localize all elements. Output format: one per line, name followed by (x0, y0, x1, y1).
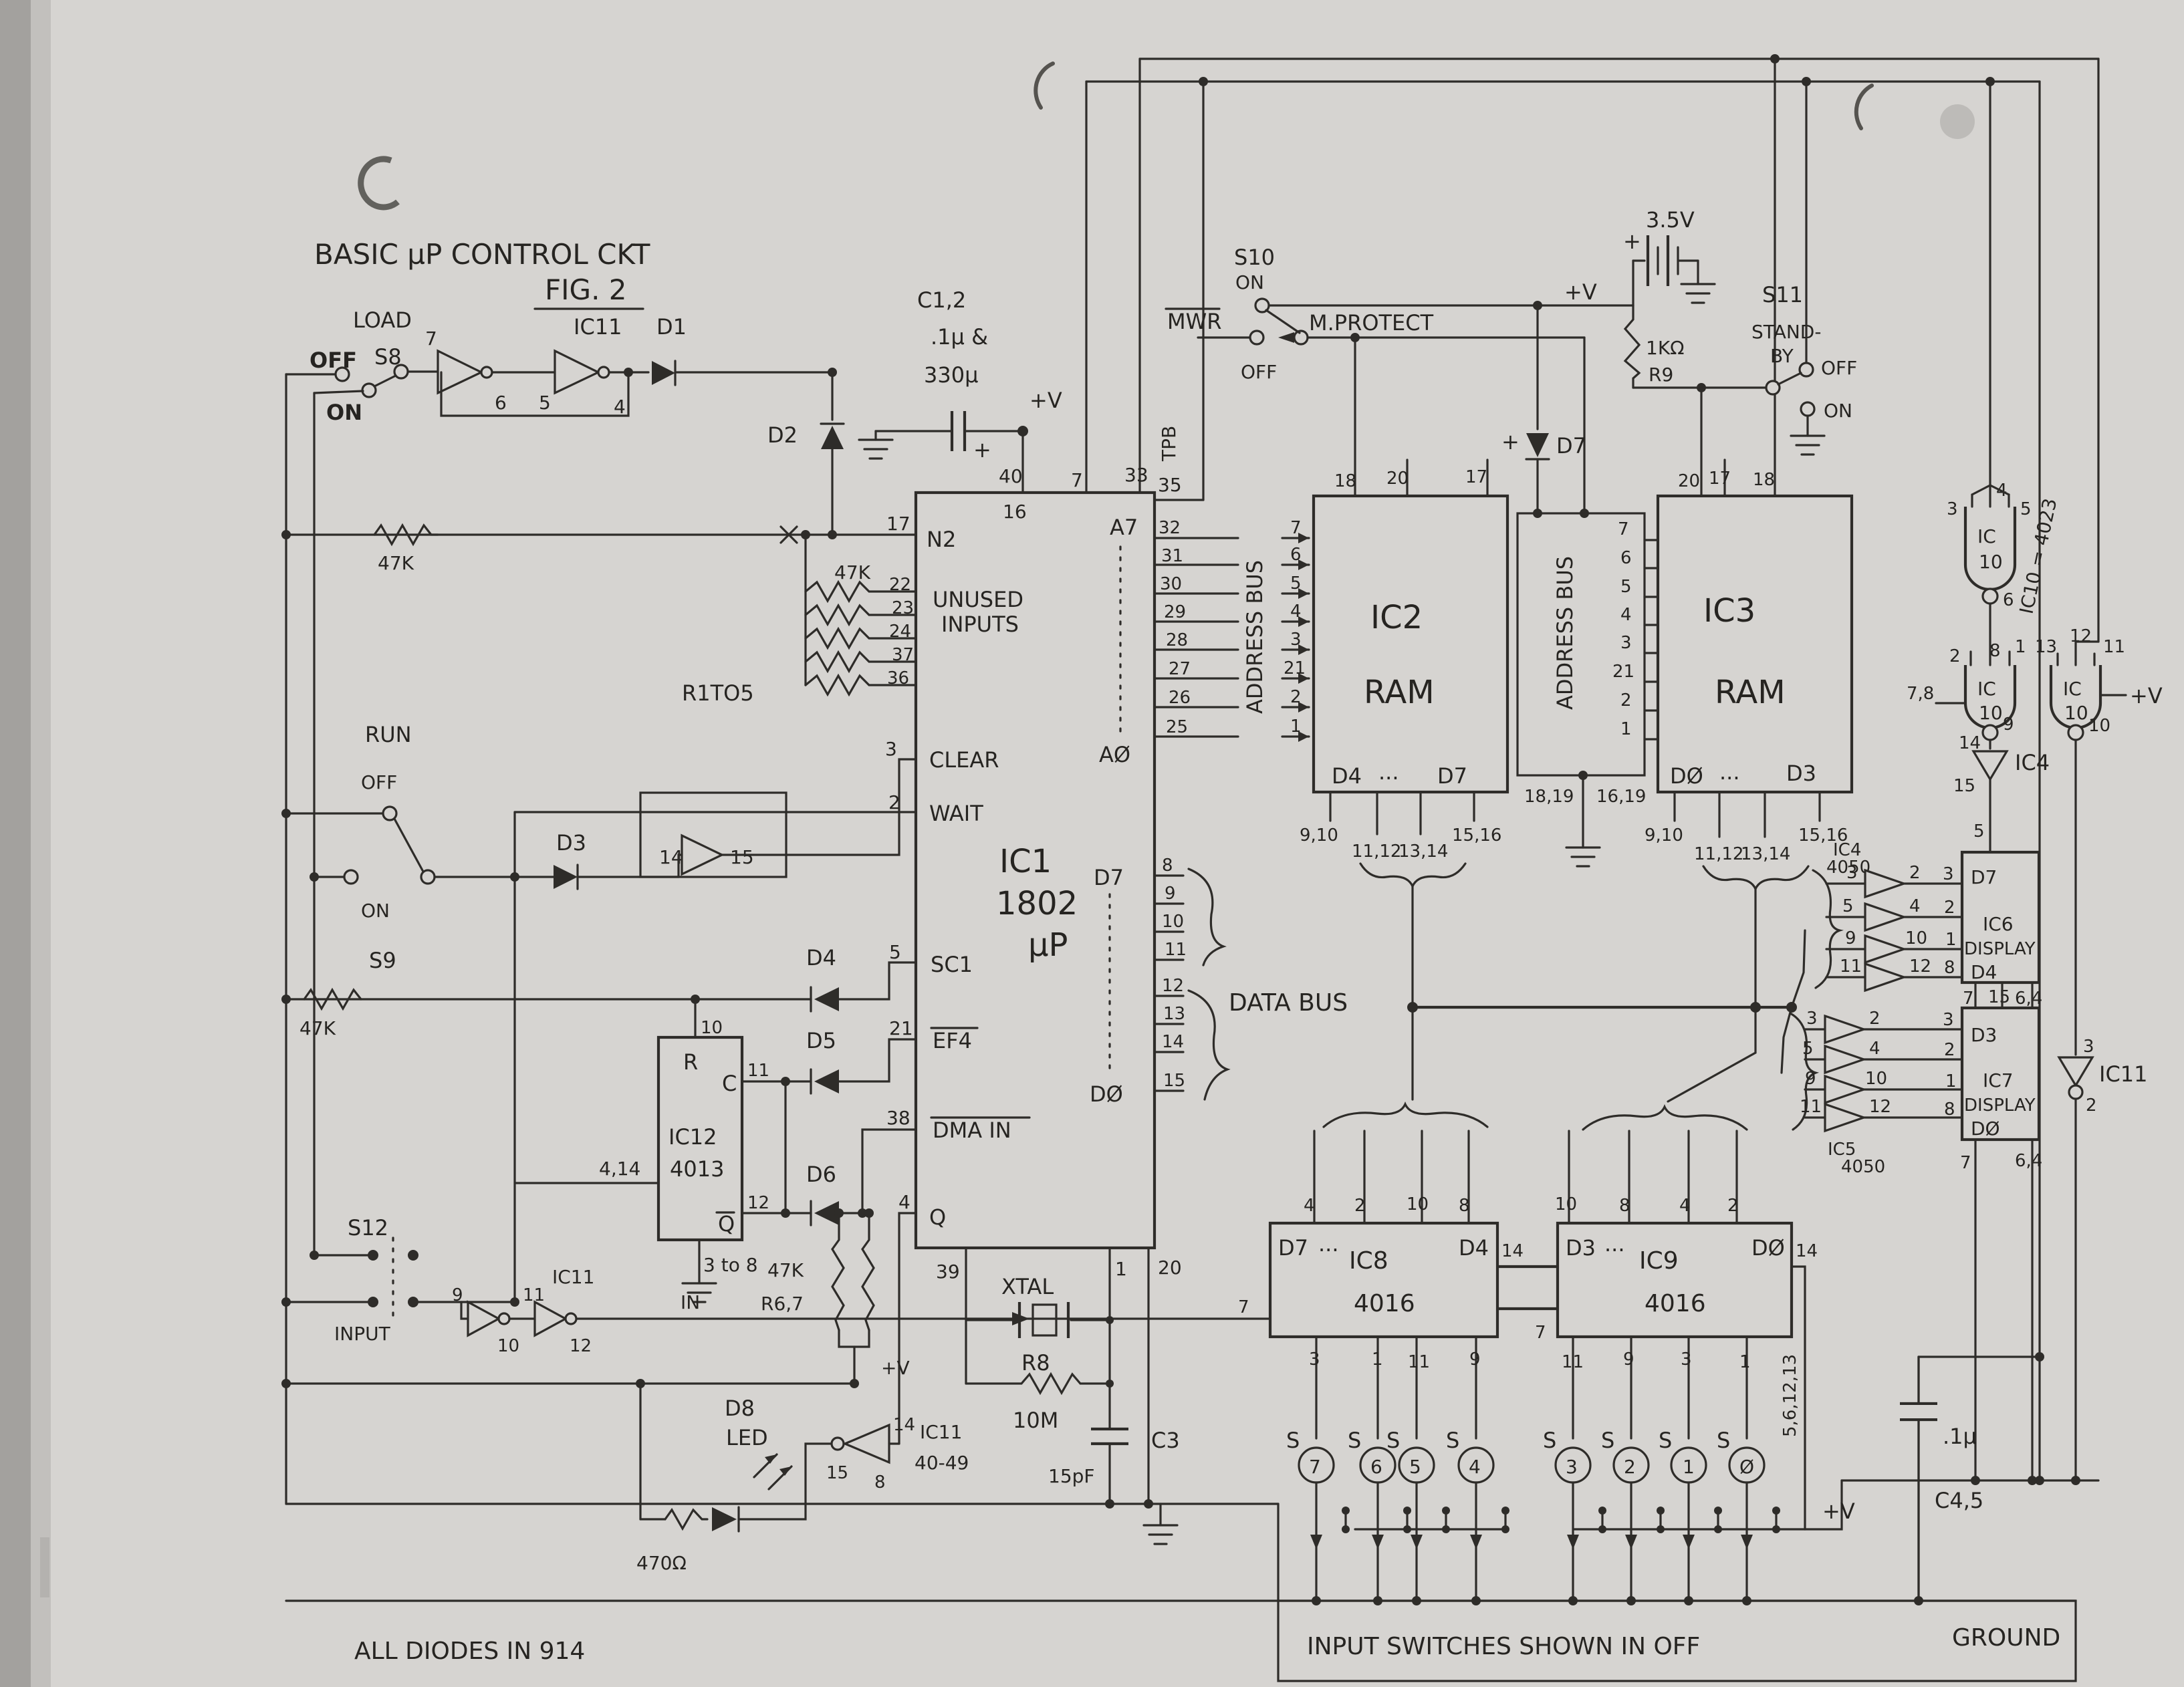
s-prefix: S (1543, 1428, 1556, 1453)
title-block: BASIC µP CONTROL CKT FIG. 2 (314, 238, 650, 309)
xtal-label: XTAL (1001, 1274, 1054, 1299)
ic3-b2: 13,14 (1741, 844, 1790, 864)
chan-pin6: 6 (1620, 548, 1632, 568)
ic9-t0: 10 (1555, 1194, 1577, 1214)
ic2-b0: 9,10 (1300, 825, 1338, 846)
ic1-pin7-label: 7 (1071, 469, 1083, 491)
ic8-p7: 7 (1238, 1297, 1249, 1317)
chan-pin7: 7 (1618, 519, 1629, 539)
ic8-t1: 2 (1354, 1196, 1366, 1216)
ic9-b1: 9 (1623, 1349, 1634, 1370)
s11-off: OFF (1821, 357, 1857, 379)
ic3-pin20: 20 (1678, 471, 1700, 491)
ic2-pin-a7: 7 (1290, 518, 1302, 538)
r67-val: 47K (767, 1259, 804, 1281)
s9-on-contact[interactable] (344, 870, 358, 884)
s-prefix: S (1286, 1428, 1300, 1453)
nand3-10: 10 (2064, 702, 2088, 724)
d5-diode (814, 1069, 839, 1093)
ic11led-p14: 14 (893, 1415, 915, 1435)
ic9-brace (1583, 1107, 1747, 1130)
switch-s3[interactable]: S 3 (1543, 1428, 1590, 1482)
switch-s2[interactable]: S 2 (1601, 1428, 1649, 1482)
s-prefix: S (1601, 1428, 1614, 1453)
ic6-name: IC6 (1983, 913, 2014, 935)
bottom-annotations: INPUT SWITCHES SHOWN IN OFF GROUND ALL D… (354, 1601, 2076, 1681)
ic7-pin2: 2 (1944, 1040, 1955, 1060)
s7-digit: 7 (1309, 1456, 1321, 1478)
ic4-in0: 3 (1846, 863, 1858, 883)
load-on-label: ON (326, 400, 362, 425)
ic3-data-brace (1703, 866, 1808, 889)
ic6-pin3: 3 (1943, 864, 1954, 884)
d1-label: D1 (656, 314, 687, 340)
ic2-dots: ... (1378, 759, 1399, 785)
mprotect-label: M.PROTECT (1309, 310, 1434, 336)
pv-switch-bus: +V (1822, 1499, 1855, 1524)
s1-digit: 1 (1683, 1456, 1695, 1478)
switch-s4[interactable]: S 4 (1446, 1428, 1493, 1482)
ic2-pin-a4: 4 (1290, 602, 1302, 622)
s12-label: S12 (348, 1215, 388, 1241)
ic1-1802: IC1 1802 µP 47K 17 N2 47K 22 23 24 37 36… (286, 493, 1238, 1283)
ic4-out1: 4 (1909, 896, 1921, 916)
s11-arm[interactable] (1778, 373, 1801, 384)
ic5-in0: 3 (1806, 1009, 1818, 1029)
s11-off-contact[interactable] (1800, 363, 1813, 376)
ic1-pin37: 37 (892, 645, 914, 665)
ic9-b0: 11 (1562, 1352, 1584, 1372)
nand3-in11: 11 (2103, 637, 2125, 657)
ic1-pin36: 36 (887, 668, 909, 688)
ic8-t2: 10 (1407, 1194, 1429, 1214)
ic8-p14: 14 (1501, 1241, 1524, 1261)
s5-digit: 5 (1409, 1456, 1421, 1478)
pin4-label: 4 (614, 396, 626, 418)
chan-pin4: 4 (1620, 605, 1632, 625)
c12-power: C1,2 .1µ & 330µ + +V 40 16 (859, 287, 1062, 523)
s8-arm[interactable] (374, 376, 396, 386)
r47k-sc1-label: 47K (299, 1017, 336, 1039)
d7-label: D7 (1556, 433, 1586, 459)
s-prefix: S (1717, 1428, 1730, 1453)
ic2-outline (1314, 496, 1507, 792)
nand1-in5: 5 (2020, 499, 2032, 519)
ic1-part: 1802 (996, 885, 1078, 922)
run-label: RUN (365, 722, 412, 747)
xtal-circuit: XTAL R8 10M C3 15pF (966, 1248, 1180, 1544)
ic1-ef4: EF4 (933, 1028, 972, 1053)
s2-digit: 2 (1624, 1456, 1636, 1478)
ic4inv-p15: 15 (1953, 776, 1975, 796)
nand2-in2: 2 (1949, 646, 1961, 666)
channel-right-stubs (1645, 568, 1658, 739)
ic12-qbar: Q (718, 1211, 735, 1237)
switch-s7[interactable]: S 7 (1286, 1428, 1334, 1482)
ic3-d3: D3 (1786, 761, 1816, 786)
ic12-bottom-pins: 3 to 8 (703, 1254, 758, 1276)
data-pin-10: 10 (1162, 912, 1184, 932)
ic8-part: 4016 (1354, 1290, 1415, 1317)
ic1-d7: D7 (1094, 865, 1124, 890)
inverter-load-b (555, 351, 598, 393)
s10-off: OFF (1241, 361, 1277, 383)
ic3-b0: 9,10 (1645, 825, 1683, 846)
ic1-pin17-label: 17 (886, 513, 911, 535)
c12-plus: + (973, 437, 991, 463)
ic6-type: DISPLAY (1964, 939, 2036, 959)
ic2-b3: 15,16 (1452, 825, 1501, 846)
ic2-pin-a6: 6 (1290, 545, 1302, 565)
ic3-type: RAM (1715, 674, 1786, 711)
r47k-n2-label: 47K (378, 552, 414, 574)
ic12-pin11: 11 (747, 1061, 769, 1081)
ic11led-name: IC11 (920, 1421, 962, 1443)
c12-val2: 330µ (924, 362, 978, 388)
top-rails: 7 33 35 TPB (1071, 54, 2098, 1480)
ic11-label: IC11 (574, 314, 622, 340)
run-inv-out: 15 (730, 846, 754, 868)
c3-val: 15pF (1048, 1465, 1095, 1487)
ic8-d7: D7 (1278, 1235, 1308, 1261)
ic2-pin18: 18 (1334, 471, 1356, 491)
ic11g-name: IC11 (2099, 1061, 2148, 1087)
ic9-p7: 7 (1535, 1323, 1546, 1343)
ic2-pin17: 17 (1465, 467, 1487, 487)
s3-digit: 3 (1566, 1456, 1578, 1478)
chan-pin2: 2 (1620, 690, 1632, 710)
ic11in-p12: 12 (570, 1336, 592, 1356)
r470-label: 470Ω (636, 1552, 687, 1574)
ic1-pin35-label: 35 (1158, 474, 1182, 496)
d3-label: D3 (556, 830, 586, 856)
ic6-pin2: 2 (1944, 898, 1955, 918)
switch-s0[interactable]: S Ø (1717, 1428, 1764, 1482)
s10-off-contact[interactable] (1294, 331, 1308, 344)
ic1-d0: DØ (1090, 1081, 1123, 1107)
ic3-pin17: 17 (1709, 469, 1731, 489)
pin7-label: 7 (425, 328, 437, 350)
ic8-b0: 3 (1309, 1349, 1320, 1370)
ic9-d3: D3 (1566, 1235, 1596, 1261)
ic2-pin-a1: 1 (1290, 717, 1302, 737)
ic2-d4: D4 (1332, 763, 1362, 789)
ic5-out3: 12 (1869, 1097, 1891, 1117)
ic9-dots: ... (1604, 1231, 1625, 1257)
ic3-pin18: 18 (1753, 470, 1775, 490)
nand3-in12: 12 (2070, 626, 2092, 646)
resistor-r6 (832, 1213, 844, 1330)
r9-val: 1KΩ (1646, 337, 1685, 359)
run-on: ON (361, 900, 390, 922)
ic6-b2: 6,4 (2015, 989, 2042, 1009)
nand3-ic: IC (2063, 678, 2082, 700)
pv-mem: +V (1564, 279, 1597, 305)
addr-pin-26: 26 (1169, 688, 1191, 708)
ic2-d7: D7 (1437, 763, 1467, 789)
ic1-a0: AØ (1099, 742, 1130, 767)
ic3-ram: IC3 RAM DØ ... D3 20 17 18 9,10 11,12 13… (1645, 59, 1852, 1007)
ic1-q: Q (929, 1204, 946, 1230)
ic9-name: IC9 (1639, 1247, 1679, 1275)
led-label: LED (726, 1425, 768, 1450)
s10-on: ON (1235, 271, 1264, 293)
addr-pin-30: 30 (1160, 574, 1182, 594)
s10-label: S10 (1234, 245, 1275, 270)
ic4-out3: 12 (1909, 956, 1931, 977)
ic1-n2: N2 (927, 527, 956, 552)
run-off: OFF (361, 771, 397, 793)
data-pin-15: 15 (1163, 1071, 1185, 1091)
ic12-left-pins: 4,14 (599, 1158, 640, 1180)
ic9-t2: 4 (1679, 1196, 1691, 1216)
ic3-b1: 11,12 (1694, 844, 1743, 864)
nand2-in8: 8 (1989, 641, 2001, 661)
ic8-b2: 11 (1408, 1352, 1430, 1372)
ic9-part: 4016 (1645, 1290, 1706, 1317)
manual-input-circuit: S12 INPUT 9 10 11 12 IC11 IN 470Ω D8 LED (281, 1215, 969, 1574)
ic8-d4: D4 (1459, 1235, 1489, 1261)
ic9-b2: 3 (1681, 1349, 1692, 1370)
switch-s1[interactable]: S 1 (1659, 1428, 1706, 1482)
ic5-out1: 4 (1869, 1039, 1880, 1059)
ic1-pin22: 22 (889, 575, 911, 595)
ic7-b2: 6,4 (2015, 1151, 2042, 1171)
ic2-type: RAM (1364, 674, 1435, 711)
d7-plus: + (1501, 429, 1520, 455)
ic9-d0: DØ (1751, 1235, 1785, 1261)
ic8-b1: 1 (1372, 1349, 1383, 1370)
ic11led-part: 40-49 (915, 1452, 969, 1474)
data-brace-lower (1189, 991, 1227, 1099)
d8-label: D8 (725, 1396, 755, 1421)
ic2-pin-a21: 21 (1284, 658, 1306, 678)
d1-diode (652, 361, 675, 385)
ic4inv-name: IC4 (2015, 750, 2050, 775)
ic1-sub: µP (1028, 926, 1068, 964)
scanned-schematic-page: BASIC µP CONTROL CKT FIG. 2 LOAD OFF S8 … (0, 0, 2184, 1687)
ic3-d0: DØ (1670, 763, 1703, 789)
ic11g-p3: 3 (2083, 1037, 2094, 1057)
s9-arm[interactable] (394, 819, 423, 872)
nand2-side78: 7,8 (1907, 684, 1934, 704)
s8-off-contact[interactable] (336, 368, 349, 381)
ic1-clear: CLEAR (929, 747, 999, 773)
ic5-in2: 9 (1805, 1069, 1816, 1089)
figure-number: FIG. 2 (545, 273, 627, 306)
ic1-pin38: 38 (886, 1107, 911, 1129)
ic1-pin40: 40 (999, 465, 1023, 487)
pin6-label: 6 (495, 392, 507, 414)
ic1-pin1: 1 (1115, 1258, 1127, 1280)
ic8-name: IC8 (1349, 1247, 1388, 1275)
addr-pin-29: 29 (1164, 602, 1186, 622)
s4-digit: 4 (1469, 1456, 1481, 1478)
ic2-pin-a3: 3 (1290, 630, 1302, 650)
ic6-pin1: 1 (1945, 930, 1957, 950)
nand3-out10: 10 (2088, 716, 2110, 736)
chan-pin3: 3 (1620, 633, 1632, 653)
ic7-d0: DØ (1971, 1118, 2000, 1140)
s9-label: S9 (369, 948, 396, 973)
ic4-input-brace (1813, 870, 1840, 988)
address-bus-middle: ADDRESS BUS 7 6 5 4 3 21 2 1 18,19 16,19 (1518, 513, 1658, 866)
nand1-10: 10 (1979, 551, 2003, 573)
ic12-r: R (683, 1049, 698, 1075)
load-switch-circuit: LOAD OFF S8 ON 7 6 IC11 5 4 D1 D2 (286, 307, 844, 535)
resistor-r8 (966, 1374, 1110, 1393)
ic1-pin33-label: 33 (1124, 464, 1148, 486)
c45-name: C4,5 (1935, 1488, 1983, 1513)
data-pin-9: 9 (1165, 884, 1176, 904)
ic11in-p10: 10 (497, 1336, 519, 1356)
ic6-b0: 7 (1963, 989, 1974, 1009)
d5-label: D5 (806, 1028, 836, 1053)
data-pin-14: 14 (1162, 1032, 1184, 1052)
d3-diode (554, 865, 578, 889)
ic4-in3: 11 (1840, 956, 1862, 977)
ic1-sc1: SC1 (931, 952, 973, 977)
s-prefix: S (1386, 1428, 1400, 1453)
ic12-flipflop-region: 47K D4 10 R C IC12 4013 Q 11 12 4,14 3 t… (281, 945, 916, 1444)
chan-pin21: 21 (1612, 662, 1634, 682)
inverter-input-b (535, 1302, 566, 1335)
load-off-label: OFF (310, 348, 357, 373)
data-pin-11: 11 (1165, 940, 1187, 960)
ic9-b3: 1 (1739, 1352, 1751, 1372)
nand1-ic: IC (1977, 525, 1996, 547)
s11-standby2: BY (1770, 345, 1794, 367)
ic1-pin16: 16 (1003, 501, 1027, 523)
ic8-t3: 8 (1459, 1196, 1470, 1216)
d4-label: D4 (806, 945, 836, 970)
r67-pv: +V (881, 1357, 910, 1379)
ic1-pin39: 39 (936, 1261, 960, 1283)
plus-v-label: +V (1029, 388, 1062, 413)
data-pin-8: 8 (1162, 856, 1173, 876)
ic7-pin8: 8 (1944, 1099, 1955, 1120)
ic11in-p9: 9 (452, 1285, 463, 1305)
data-pin-13: 13 (1163, 1004, 1185, 1024)
ic8-b3: 9 (1469, 1349, 1481, 1370)
ic5-in1: 5 (1802, 1039, 1814, 1059)
battery-plus: + (1623, 229, 1641, 254)
s11-standby1: STAND- (1751, 321, 1821, 343)
d2-label: D2 (767, 422, 798, 448)
resistor-470 (665, 1510, 707, 1529)
chan-pin1: 1 (1620, 719, 1632, 739)
ic5-out2: 10 (1865, 1069, 1887, 1089)
ic12-pin12: 12 (747, 1193, 769, 1213)
ic2-pin-a2: 2 (1290, 687, 1302, 707)
inverter-load-a (438, 351, 481, 393)
nand1-in3: 3 (1947, 499, 1958, 519)
r67-name: R6,7 (761, 1293, 804, 1315)
switch-drop-wires: +V (1310, 1480, 1855, 1605)
c45-val: .1µ (1943, 1424, 1977, 1449)
ic4-out2: 10 (1905, 928, 1927, 948)
r9-name: R9 (1649, 364, 1673, 386)
ic1-inputs: INPUTS (941, 612, 1019, 637)
ic1-pin4: 4 (898, 1191, 911, 1213)
ic2-name: IC2 (1370, 599, 1423, 636)
data-bus-label: DATA BUS (1229, 989, 1348, 1017)
ic6-d7: D7 (1971, 866, 1997, 888)
ic11in-name: IC11 (552, 1266, 594, 1288)
chan-br: 16,19 (1596, 787, 1646, 807)
ic7-pin1: 1 (1945, 1071, 1957, 1091)
c12-val1: .1µ & (931, 324, 988, 350)
nand2-ic: IC (1977, 678, 1996, 700)
ground-label: GROUND (1952, 1624, 2060, 1652)
ic1-dmain: DMA IN (933, 1118, 1011, 1143)
ic4-out0: 2 (1909, 863, 1921, 883)
ic11led-p8: 8 (874, 1472, 886, 1493)
ic2-data-brace (1360, 864, 1465, 886)
s11-on-contact[interactable] (1801, 402, 1814, 416)
address-bus-mid-label: ADDRESS BUS (1552, 556, 1578, 710)
address-bus-left: ADDRESS BUS 7 6 5 4 3 21 2 1 (1242, 518, 1309, 742)
s10-common-contact[interactable] (1250, 331, 1263, 344)
ic7-type: DISPLAY (1964, 1095, 2036, 1116)
s11-on: ON (1824, 400, 1852, 422)
nand3-in13: 13 (2035, 637, 2057, 657)
ic12-name: IC12 (669, 1124, 717, 1150)
nand2-out9: 9 (2003, 715, 2014, 735)
schematic-canvas: BASIC µP CONTROL CKT FIG. 2 LOAD OFF S8 … (0, 0, 2184, 1687)
addr-pin-27: 27 (1169, 659, 1191, 679)
ic7-d3: D3 (1971, 1024, 1997, 1046)
schematic-title: BASIC µP CONTROL CKT (314, 238, 650, 271)
c3-label: C3 (1151, 1428, 1180, 1453)
ic1-pin24: 24 (889, 622, 911, 642)
inverter-run (682, 835, 722, 874)
s10-arm[interactable] (1266, 310, 1300, 333)
ic6-d4: D4 (1971, 961, 1997, 983)
ic9-p14: 14 (1796, 1241, 1818, 1261)
in-label: IN (681, 1291, 700, 1313)
ic6-p5: 5 (1973, 821, 1985, 841)
tpb-label: TPB (1158, 426, 1180, 462)
ic2-pin20: 20 (1386, 469, 1409, 489)
r8-label: R8 (1021, 1350, 1050, 1376)
d2-diode (821, 426, 844, 449)
nand2-10: 10 (1979, 702, 2003, 724)
nand1-ic10 (1965, 507, 2015, 590)
s12-input-label: INPUT (334, 1323, 391, 1345)
resistor-r9 (1625, 305, 1639, 388)
data-bus: DATA BUS (1229, 930, 1805, 1073)
ic4-in2: 9 (1845, 928, 1856, 948)
ic1-pin3: 3 (885, 738, 897, 760)
ic1-name: IC1 (999, 843, 1052, 880)
addr-pin-31: 31 (1161, 546, 1183, 566)
ic8-t0: 4 (1304, 1196, 1315, 1216)
pin5-label: 5 (539, 392, 551, 414)
d4-diode (814, 987, 839, 1011)
inverter-input-a (468, 1302, 499, 1335)
d6-label: D6 (806, 1162, 836, 1187)
inverter-led-driver (845, 1425, 889, 1462)
ic7-b0: 7 (1960, 1153, 1971, 1173)
ic1-pin23: 23 (892, 598, 914, 618)
ic2-b1: 11,12 (1352, 841, 1401, 862)
load-label: LOAD (353, 307, 412, 333)
s11-common-contact[interactable] (1766, 381, 1780, 394)
ic3-name: IC3 (1703, 592, 1755, 630)
ic3-dots: ... (1719, 759, 1740, 785)
d7-diode (1526, 433, 1549, 457)
